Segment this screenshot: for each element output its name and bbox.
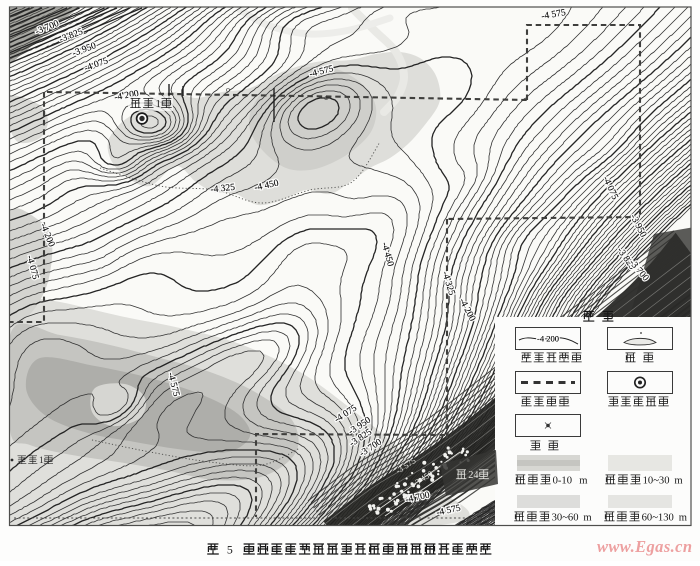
svg-text:60~130: 60~130 <box>642 512 674 523</box>
svg-text:www.Egas.cn: www.Egas.cn <box>597 537 692 556</box>
svg-text:24: 24 <box>468 470 478 481</box>
svg-text:m: m <box>583 512 592 523</box>
svg-text:30~60: 30~60 <box>552 512 579 523</box>
svg-text:1: 1 <box>39 456 44 466</box>
svg-text:0-10: 0-10 <box>553 475 572 486</box>
svg-text:m: m <box>674 475 683 486</box>
svg-text:a: a <box>324 93 328 102</box>
svg-text:10~30: 10~30 <box>643 475 670 486</box>
svg-text:5: 5 <box>227 542 233 556</box>
svg-text:1: 1 <box>156 98 161 110</box>
svg-text:o: o <box>226 85 230 94</box>
svg-text:m: m <box>679 512 688 523</box>
svg-text:-4 200: -4 200 <box>537 334 559 344</box>
svg-text:m: m <box>579 475 588 486</box>
